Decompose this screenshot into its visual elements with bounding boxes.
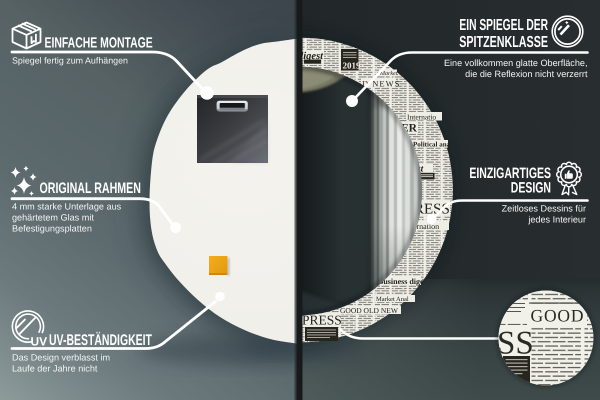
svg-text:UV-BESTÄNDIGKEIT: UV-BESTÄNDIGKEIT — [49, 331, 152, 349]
svg-text:DESIGN: DESIGN — [511, 180, 551, 197]
svg-text:Laufe der Jahre nicht: Laufe der Jahre nicht — [12, 364, 98, 374]
svg-text:Eine vollkommen glatte Oberflä: Eine vollkommen glatte Oberfläche, — [444, 58, 588, 68]
svg-text:UV: UV — [31, 335, 48, 349]
svg-text:EINFACHE MONTAGE: EINFACHE MONTAGE — [45, 36, 153, 52]
svg-text:Zeitloses Dessins für: Zeitloses Dessins für — [502, 204, 586, 214]
svg-text:EIN SPIEGEL DER: EIN SPIEGEL DER — [459, 17, 548, 34]
svg-text:Spiegel fertig zum Aufhängen: Spiegel fertig zum Aufhängen — [12, 56, 128, 66]
svg-text:SPITZENKLASSE: SPITZENKLASSE — [459, 34, 548, 51]
svg-text:die die Reflexion nicht verzer: die die Reflexion nicht verzerrt — [465, 69, 588, 79]
svg-text:Das Design verblasst im: Das Design verblasst im — [12, 353, 110, 363]
svg-text:GOOD: GOOD — [531, 306, 585, 326]
svg-text:gehärtetem Glas mit: gehärtetem Glas mit — [12, 213, 94, 223]
svg-text:jedes Interieur: jedes Interieur — [527, 215, 586, 225]
svg-text:2019: 2019 — [343, 61, 362, 71]
svg-text:Market Anal: Market Anal — [376, 296, 409, 303]
svg-text:ORIGINAL RAHMEN: ORIGINAL RAHMEN — [40, 180, 141, 197]
svg-text:Befestigungsplatten: Befestigungsplatten — [12, 224, 92, 234]
svg-text:4 mm starke Unterlage aus: 4 mm starke Unterlage aus — [12, 202, 122, 212]
svg-text:GOOD OLD NEW: GOOD OLD NEW — [340, 306, 399, 315]
svg-text:Political ana: Political ana — [413, 141, 451, 149]
svg-text:Internatio: Internatio — [407, 113, 436, 122]
